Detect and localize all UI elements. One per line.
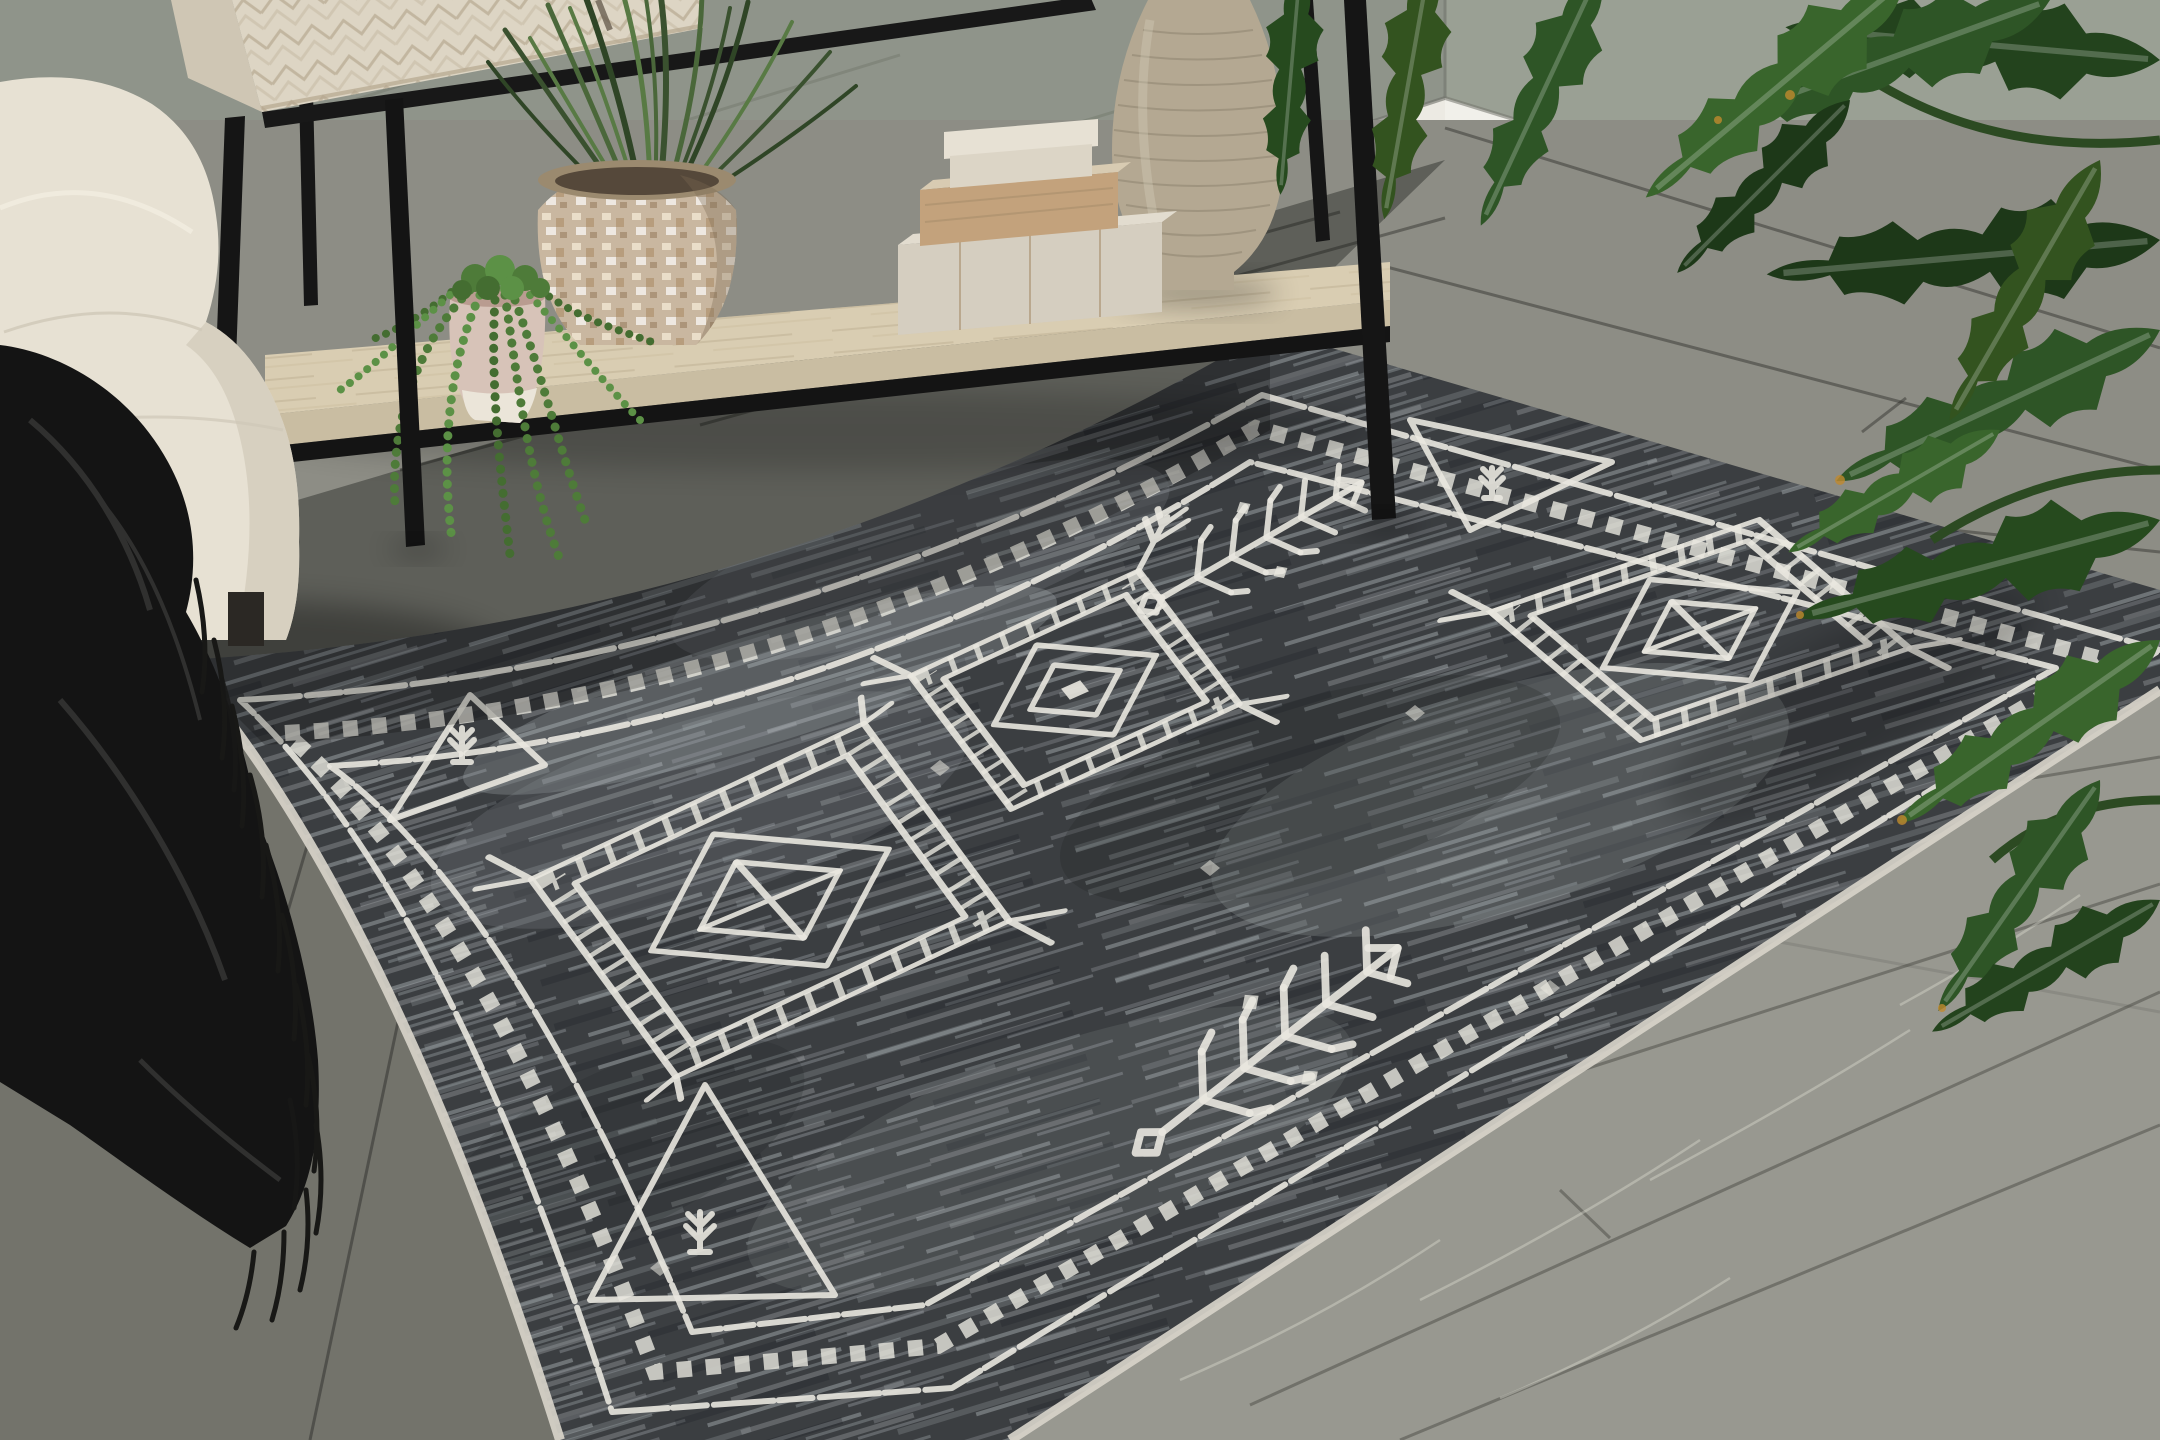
leg-shadow-mid (390, 541, 446, 557)
living-room-photo (0, 0, 2160, 1440)
sofa-foot (228, 592, 264, 646)
leg-shadow-right (1352, 515, 1420, 533)
